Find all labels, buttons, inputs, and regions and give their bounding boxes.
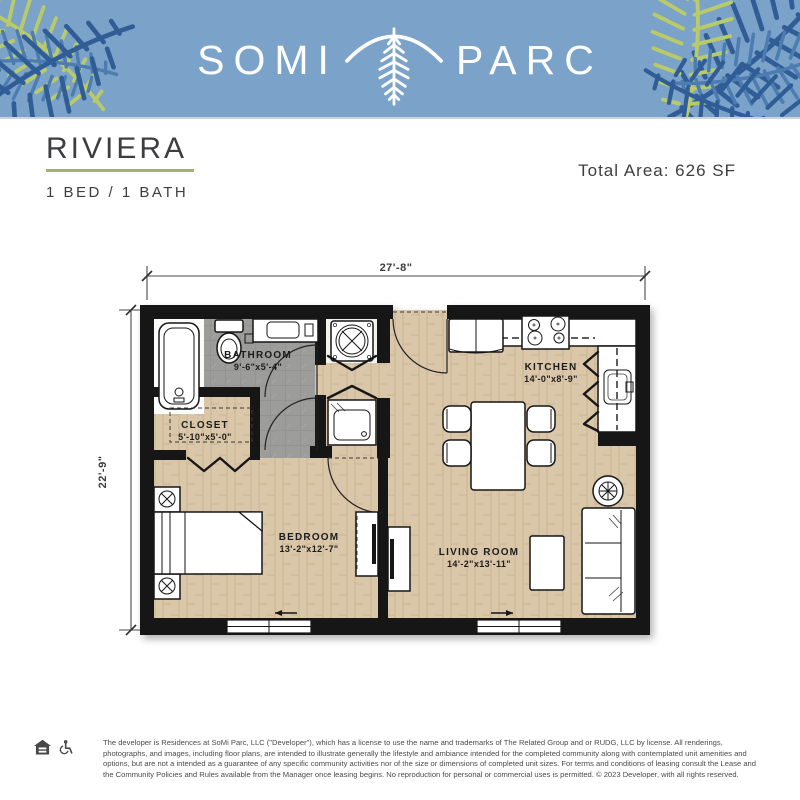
total-area-label: Total Area: 626 SF <box>578 161 736 181</box>
leaf-icon <box>342 10 446 108</box>
page-title: RIVIERA <box>46 132 187 166</box>
floor-plan: 27'-8" 22'-9" <box>75 250 665 650</box>
dimension-left: 22'-9" <box>97 305 145 635</box>
bathtub-icon <box>159 323 199 409</box>
footer: The developer is Residences at SoMi Parc… <box>33 738 773 781</box>
dining-table-icon <box>471 402 525 490</box>
refrigerator-icon <box>449 319 503 353</box>
kitchen-label: KITCHEN <box>525 362 578 373</box>
plant-icon <box>593 476 623 506</box>
bedroom-size: 13'-2"x12'-7" <box>279 544 338 554</box>
washer-dryer-icon <box>331 321 373 361</box>
accessibility-icon <box>59 739 75 756</box>
closet-size: 5'-10"x5'-0" <box>178 432 232 442</box>
vanity-sink-icon <box>253 319 318 342</box>
dimension-height-label: 22'-9" <box>97 456 109 489</box>
legal-disclaimer: The developer is Residences at SoMi Parc… <box>103 738 763 781</box>
dimension-top: 27'-8" <box>142 262 650 300</box>
coffee-table-icon <box>530 536 564 590</box>
brand-somi: SOMI <box>197 40 338 81</box>
brand-parc: PARC <box>456 40 603 81</box>
stove-icon <box>522 316 569 349</box>
water-heater-icon <box>328 400 376 445</box>
living-room-size: 14'-2"x13'-11" <box>447 559 511 569</box>
footer-icons <box>33 738 75 756</box>
somi-parc-logo: SOMI PARC <box>0 0 800 117</box>
living-room-label: LIVING ROOM <box>439 547 519 558</box>
equal-housing-icon <box>33 739 52 756</box>
bathroom-size: 9'-6"x5'-4" <box>234 362 282 372</box>
dimension-width-label: 27'-8" <box>380 262 413 274</box>
closet-label: CLOSET <box>181 420 229 431</box>
bedroom-label: BEDROOM <box>279 532 340 543</box>
bathroom-label: BATHROOM <box>224 350 292 361</box>
bed-bath-label: 1 BED / 1 BATH <box>46 184 188 201</box>
header-banner: SOMI PARC <box>0 0 800 119</box>
kitchen-size: 14'-0"x8'-9" <box>524 374 578 384</box>
sofa-icon <box>582 508 635 614</box>
accent-divider <box>46 169 194 172</box>
bed-icon <box>154 512 262 574</box>
